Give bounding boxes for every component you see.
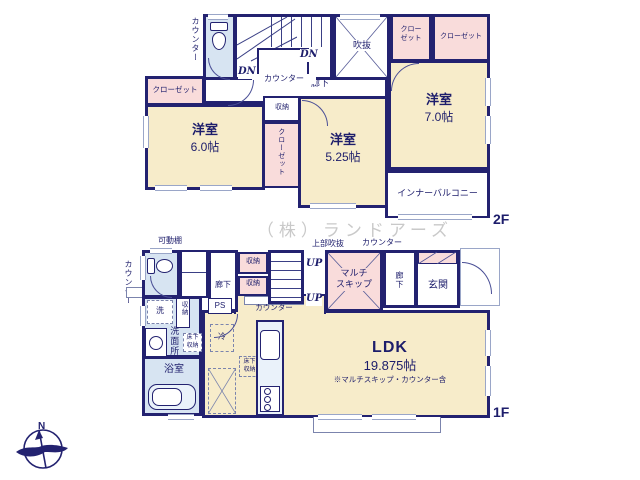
room-west-7-name: 洋室 xyxy=(404,92,474,108)
room-west-6-size: 6.0帖 xyxy=(170,140,240,155)
window-2f-west525-bottom xyxy=(310,203,356,209)
hallway-1f-right-label: 廊下 xyxy=(394,271,404,289)
hallway-1f-left-label: 廊下 xyxy=(210,280,236,290)
storage-2f-label: 収納 xyxy=(266,104,298,113)
washer-label: 洗 xyxy=(150,306,170,316)
stove-burner-3 xyxy=(264,404,271,411)
counter-mid-label: カウンター xyxy=(246,303,302,312)
closet-2f-left-label: クローゼット xyxy=(148,85,202,94)
window-1f-toilet-left xyxy=(140,256,146,280)
window-2f-toilet-top xyxy=(208,14,228,20)
watermark: （株）ランドアーズ xyxy=(225,220,485,241)
window-1f-top-left xyxy=(150,248,172,254)
window-2f-west6-bottom-a xyxy=(155,185,187,191)
room-west-6-name: 洋室 xyxy=(170,122,240,138)
toilet-bowl-icon-1f xyxy=(156,259,173,273)
closet-2f-right-label: クローゼット xyxy=(434,33,488,42)
dn-label-lower: DN xyxy=(238,66,256,79)
movable-shelf-label: 可動棚 xyxy=(158,236,182,246)
window-1f-bath-bottom xyxy=(168,414,194,420)
window-1f-ldk-bottom-b xyxy=(372,414,416,420)
closet-2f-vertical-label: クローゼット xyxy=(276,128,285,176)
room-west-525-size: 5.25帖 xyxy=(308,150,378,165)
dining-area-cross xyxy=(208,368,236,414)
counter-top-label-1f: カウンター xyxy=(362,238,402,248)
toilet-tank-icon-1f xyxy=(147,258,155,274)
bathroom-label: 浴室 xyxy=(158,364,190,377)
stairs-1f-steps xyxy=(271,253,301,301)
movable-shelf-closet xyxy=(180,250,208,298)
floor-plan-canvas: （株）ランドアーズ 廊下 カウンター カウンター DN DN 吹抜 クロー ゼッ… xyxy=(0,0,640,480)
window-2f-west7-right-b xyxy=(485,116,491,144)
floor1-label: 1F xyxy=(493,404,509,422)
kitchen-sink-icon xyxy=(260,330,280,360)
washbasin-bowl-icon xyxy=(149,336,163,350)
ps-label: PS xyxy=(210,301,230,311)
entrance-label: 玄関 xyxy=(422,280,454,293)
window-2f-west6-bottom-b xyxy=(200,185,232,191)
storage-1f-upper-label: 収納 xyxy=(240,258,266,267)
compass-icon: N xyxy=(12,418,72,476)
bathtub-inner-icon xyxy=(152,388,182,406)
stair-counter-2f-label: カウンター xyxy=(252,74,316,84)
dn-label-upper: DN xyxy=(300,49,318,62)
window-1f-ldk-right-b xyxy=(485,366,491,396)
room-west-525-name: 洋室 xyxy=(308,132,378,148)
shoe-cabinet-lines xyxy=(418,252,457,264)
ldk-size: 19.875帖 xyxy=(345,358,435,374)
stove-burner-2 xyxy=(264,396,271,403)
up-label-lower: UP xyxy=(306,293,322,306)
toilet-icon-2f xyxy=(210,22,228,31)
floor2-label: 2F xyxy=(493,211,509,229)
window-2f-west6-left xyxy=(143,116,149,148)
closet-2f-small-label: クロー ゼット xyxy=(392,26,430,44)
ldk-name: LDK xyxy=(345,338,435,358)
storage-1f-vertical-label: 収納 xyxy=(179,301,187,316)
room-west-7-size: 7.0帖 xyxy=(404,110,474,125)
stove-burner-1 xyxy=(264,388,271,395)
counter-label-2f-left: カウンター xyxy=(190,17,200,62)
window-2f-void-top xyxy=(340,14,380,20)
up-label-upper: UP xyxy=(306,258,322,271)
inner-balcony-label: インナーバルコニー xyxy=(390,188,485,199)
window-2f-balcony-bottom xyxy=(398,214,472,220)
window-2f-west7-right-a xyxy=(485,78,491,106)
window-1f-ldk-bottom-a xyxy=(318,414,362,420)
compass-north-text: N xyxy=(38,421,45,432)
multi-skip-label: マルチ スキップ xyxy=(329,268,379,291)
underfloor-storage-washroom-label: 床下 収納 xyxy=(184,335,201,350)
upper-void-label: 上部吹抜 xyxy=(312,239,344,249)
washroom-label: 洗面所 xyxy=(168,326,179,356)
ldk-note: ※マルチスキップ・カウンター含 xyxy=(325,375,455,384)
window-1f-washroom-left xyxy=(140,306,146,326)
counter-label-1f-left: カウンター xyxy=(123,260,133,305)
storage-1f-lower-label: 収納 xyxy=(240,280,266,289)
void-2f-label: 吹抜 xyxy=(341,40,383,51)
window-1f-ldk-right-a xyxy=(485,330,491,356)
movable-shelf-line xyxy=(182,272,206,273)
